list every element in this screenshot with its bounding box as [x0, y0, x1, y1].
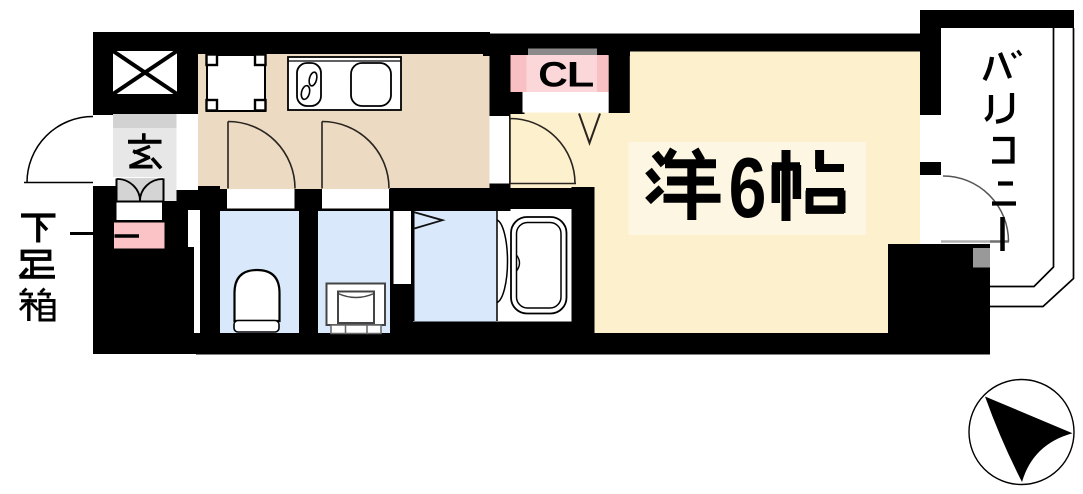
svg-text:L: L	[567, 54, 595, 94]
svg-text:C: C	[538, 56, 568, 95]
svg-text:6: 6	[729, 141, 767, 236]
